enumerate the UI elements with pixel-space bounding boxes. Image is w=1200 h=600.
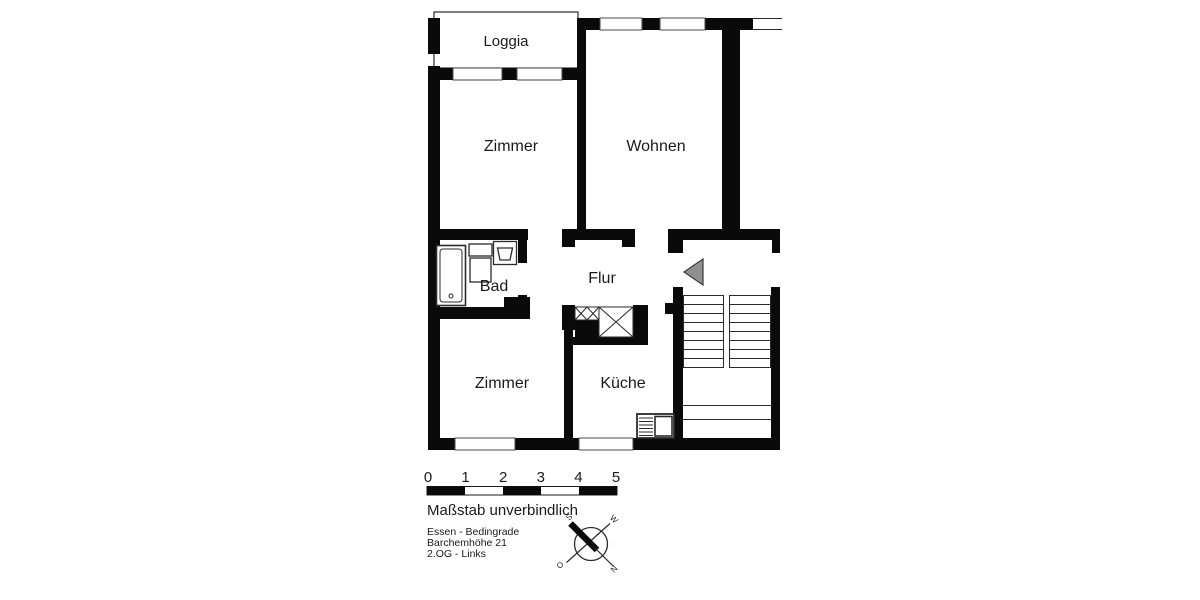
scale-tick-2: 2 <box>499 469 507 486</box>
scale-tick-5: 5 <box>612 469 620 486</box>
room-label-zimmer-bottom: Zimmer <box>475 375 530 392</box>
toilet-icon <box>494 242 517 265</box>
sink-icon <box>469 244 492 282</box>
compass-label-east: O <box>555 560 566 571</box>
window-wohnen-right <box>660 18 705 30</box>
room-label-zimmer-top: Zimmer <box>484 138 539 155</box>
bathtub-icon <box>437 246 466 306</box>
floor-plan-drawing: Loggia Zimmer Wohnen Bad Flur Zimmer Küc… <box>0 0 1200 600</box>
address-block: Essen - Bedingrade Barchemhöhe 21 2.OG -… <box>427 526 519 560</box>
scale-tick-3: 3 <box>537 469 545 486</box>
scale-tick-1: 1 <box>461 469 469 486</box>
bathroom-fixtures <box>437 242 517 306</box>
room-label-flur: Flur <box>588 270 616 287</box>
room-label-kueche: Küche <box>600 375 645 392</box>
kitchen-unit-icon <box>637 414 674 438</box>
scale-tick-0: 0 <box>424 469 432 486</box>
scale-note: Maßstab unverbindlich <box>427 502 578 519</box>
window-loggia-right <box>517 68 562 80</box>
address-line-3: 2.OG - Links <box>427 548 486 560</box>
room-label-loggia: Loggia <box>483 33 529 50</box>
scale-bar-segments <box>427 487 617 496</box>
room-label-bad: Bad <box>480 278 508 295</box>
entrance-door-marker <box>684 259 703 285</box>
open-wall-lines <box>753 19 782 30</box>
scale-tick-labels: 0 1 2 3 4 5 <box>424 469 620 486</box>
floor-plan: Loggia Zimmer Wohnen Bad Flur Zimmer Küc… <box>428 12 782 450</box>
compass-rose: S W O N <box>555 512 620 574</box>
compass-label-north: N <box>609 564 620 575</box>
scale-bar: 0 1 2 3 4 5 Maßstab unverbindlich <box>424 469 620 519</box>
room-label-wohnen: Wohnen <box>626 138 685 155</box>
window-kueche <box>579 438 633 450</box>
window-loggia-left <box>453 68 502 80</box>
staircase <box>683 296 771 420</box>
window-zimmer-bottom <box>455 438 515 450</box>
window-wohnen-left <box>600 18 642 30</box>
floor-plan-page: Loggia Zimmer Wohnen Bad Flur Zimmer Küc… <box>0 0 1200 600</box>
scale-tick-4: 4 <box>574 469 582 486</box>
